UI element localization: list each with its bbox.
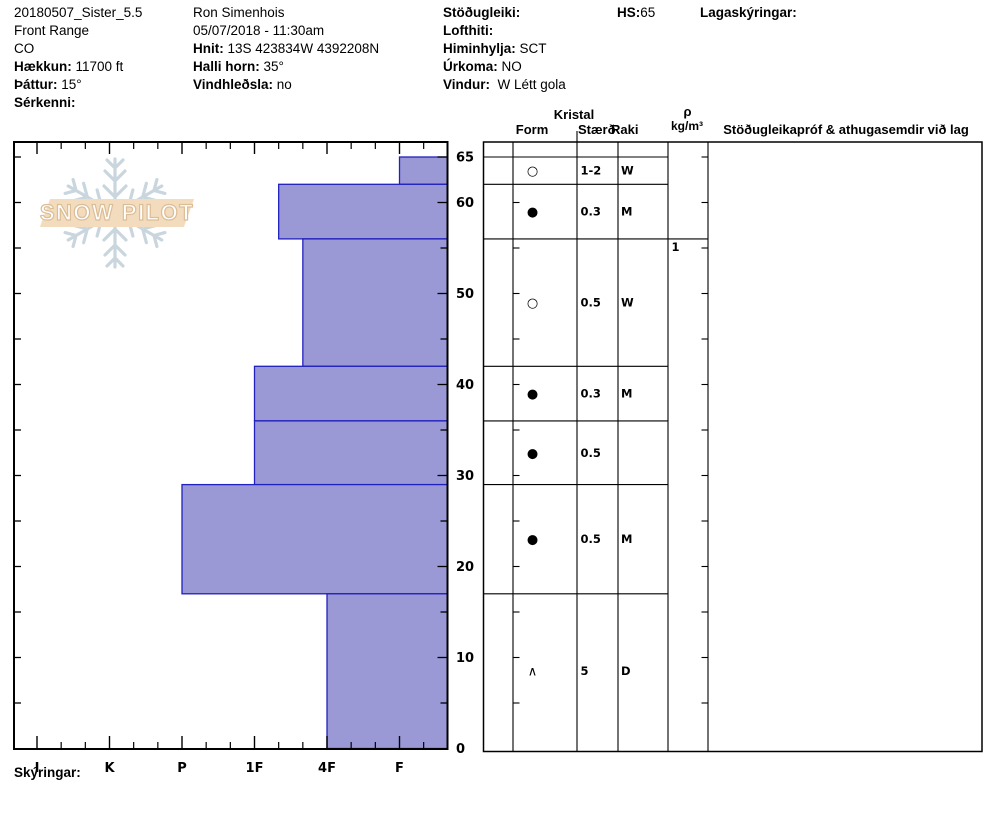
table-border [484, 142, 983, 752]
grain-size-value: 5 [581, 664, 589, 678]
moisture-value: M [621, 532, 632, 546]
grain-form-symbol: ● [527, 446, 538, 461]
snow-profile-chart: 656050403020100IKP1F4FF○1-2W●0.3M○0.5W●0… [0, 0, 994, 840]
grain-size-value: 0.5 [581, 296, 601, 310]
moisture-value: D [621, 664, 631, 678]
grain-form-symbol: ○ [527, 296, 538, 311]
layer-bar-36-29 [255, 421, 448, 485]
moisture-value: W [621, 296, 634, 310]
layer-bar-62-56 [279, 184, 448, 239]
grain-form-symbol: ∧ [528, 665, 538, 680]
hardness-label-F: F [395, 761, 404, 776]
footer-notes-label: Skýringar: [14, 764, 81, 782]
density-value: 1 [672, 240, 680, 254]
layer-bar-65-62 [400, 157, 448, 184]
grain-size-value: 0.3 [581, 387, 601, 401]
layer-bar-56-42 [303, 239, 448, 366]
moisture-value: W [621, 164, 634, 178]
depth-label-50: 50 [456, 287, 474, 302]
hardness-label-P: P [177, 761, 187, 776]
hardness-label-1F: 1F [246, 761, 264, 776]
layer-bar-29-17 [182, 485, 448, 594]
depth-label-10: 10 [456, 651, 474, 666]
grain-form-symbol: ○ [527, 164, 538, 179]
moisture-value: M [621, 387, 632, 401]
grain-size-value: 0.5 [581, 532, 601, 546]
layer-bar-17-0 [327, 594, 448, 749]
grain-size-value: 0.5 [581, 446, 601, 460]
depth-label-60: 60 [456, 196, 474, 211]
depth-label-0: 0 [456, 742, 465, 757]
grain-size-value: 1-2 [581, 164, 602, 178]
grain-size-value: 0.3 [581, 205, 601, 219]
depth-label-65: 65 [456, 151, 474, 166]
depth-label-20: 20 [456, 560, 474, 575]
grain-form-symbol: ● [527, 205, 538, 220]
hardness-label-4F: 4F [318, 761, 336, 776]
grain-form-symbol: ● [527, 533, 538, 548]
moisture-value: M [621, 205, 632, 219]
depth-label-30: 30 [456, 469, 474, 484]
hardness-label-K: K [104, 761, 115, 776]
grain-form-symbol: ● [527, 387, 538, 402]
depth-label-40: 40 [456, 378, 474, 393]
layer-bar-42-36 [255, 366, 448, 421]
